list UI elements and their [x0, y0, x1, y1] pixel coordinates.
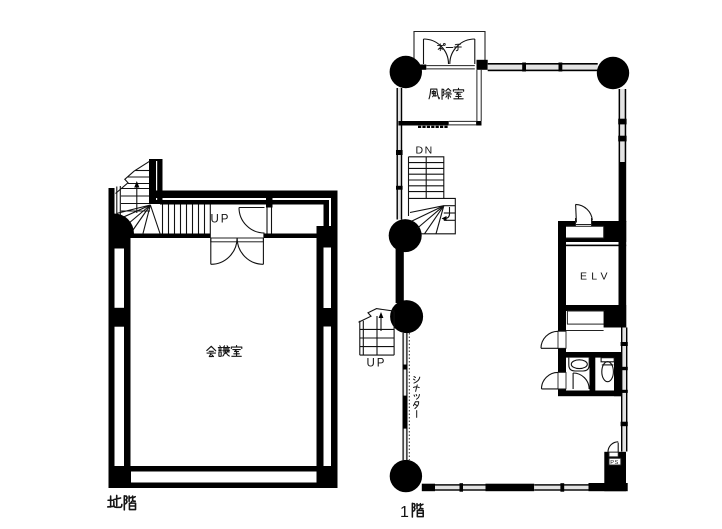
svg-text:ELV: ELV — [580, 271, 612, 283]
svg-text:DN: DN — [416, 145, 434, 157]
svg-text:UP: UP — [211, 214, 231, 226]
svg-text:PS: PS — [610, 460, 618, 466]
svg-text:UP: UP — [367, 358, 387, 370]
svg-text:1: 1 — [400, 504, 409, 521]
